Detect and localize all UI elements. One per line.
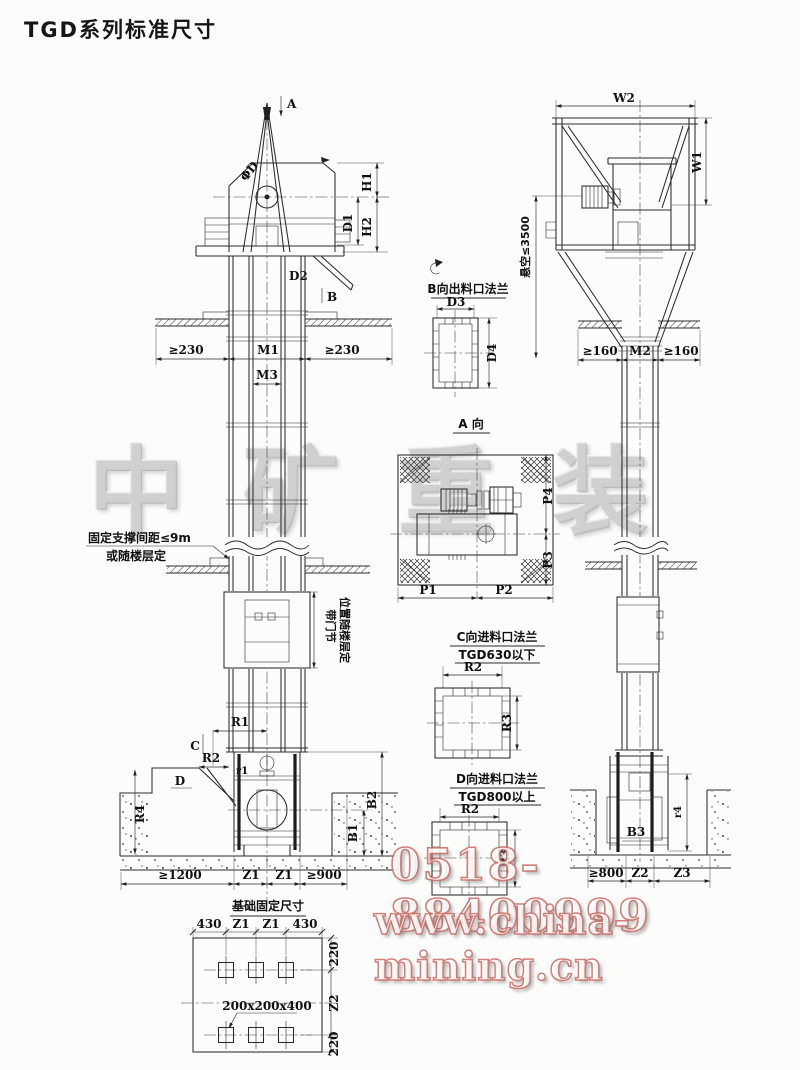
discharge-spout: B D2 bbox=[285, 256, 353, 304]
support-note-line1: 固定支撑间距≤9m bbox=[88, 530, 191, 545]
foundation-title: 基础固定尺寸 bbox=[231, 898, 304, 913]
door-note-line2: 位置随楼层定 bbox=[338, 597, 352, 663]
flange-d-title: D向进料口法兰 bbox=[456, 771, 538, 786]
clear-left-label: ≥160 bbox=[582, 344, 617, 358]
door-section: 带门节 位置随楼层定 bbox=[223, 591, 352, 669]
m2-label: M2 bbox=[629, 344, 651, 358]
dim-430-label: 430 bbox=[196, 917, 221, 931]
pit-right: B2 B1 bbox=[306, 752, 398, 856]
base-right-label: ≥900 bbox=[306, 868, 341, 882]
door-section-side bbox=[615, 596, 663, 673]
p3-label: P3 bbox=[541, 551, 555, 568]
section-b-label: B bbox=[327, 290, 337, 304]
d3-label: D3 bbox=[447, 295, 466, 309]
head-frame bbox=[546, 118, 698, 250]
hole-note-label: 200x200x400 bbox=[222, 999, 311, 1013]
floor-1-side: ≥160 M2 ≥160 bbox=[578, 321, 700, 366]
head-assembly: ΦD bbox=[196, 157, 350, 256]
flange-b-detail: B向出料口法兰 D3 D4 bbox=[424, 259, 509, 397]
dim-220-label: 220 bbox=[327, 1031, 341, 1056]
h2-label: H2 bbox=[360, 217, 374, 237]
hole-size-note: 200x200x400 bbox=[222, 999, 311, 1028]
r4-label: R4 bbox=[133, 805, 147, 823]
flange-c-title: C向进料口法兰 bbox=[457, 629, 538, 644]
r3-label: R3 bbox=[500, 714, 514, 732]
foundation-plan: 基础固定尺寸 430 Z1 Z1 430 22 bbox=[181, 898, 341, 1057]
floor-2-side bbox=[585, 562, 697, 569]
rotation-arrow-icon bbox=[431, 259, 443, 274]
p4-label: P4 bbox=[541, 487, 555, 504]
suspend-label: 悬空≤3500 bbox=[518, 216, 532, 279]
b3-label: B3 bbox=[627, 825, 646, 839]
w2-label: W2 bbox=[612, 91, 635, 105]
r2-label: R2 bbox=[461, 802, 479, 816]
plan-side-dimensions: 220 Z2 220 bbox=[300, 935, 341, 1057]
p2-label: P2 bbox=[495, 583, 512, 597]
head-casing-side bbox=[582, 158, 676, 250]
base-left-label: ≥1200 bbox=[158, 868, 201, 882]
p1-label: P1 bbox=[419, 583, 436, 597]
b1-label: B1 bbox=[346, 824, 360, 843]
z1-label: Z1 bbox=[232, 917, 249, 931]
h1-label: H1 bbox=[360, 172, 374, 192]
m1-label: M1 bbox=[257, 343, 279, 357]
door-note-line1: 带门节 bbox=[324, 610, 338, 643]
r2-label: R2 bbox=[464, 660, 482, 674]
head-casing-plan bbox=[417, 509, 517, 560]
z1-label: Z1 bbox=[262, 917, 279, 931]
b2-label: B2 bbox=[365, 791, 379, 810]
support-note: 固定支撑间距≤9m 或随楼层定 bbox=[86, 530, 229, 563]
m3-label: M3 bbox=[256, 368, 278, 382]
flange-b-title: B向出料口法兰 bbox=[427, 281, 508, 296]
d1-label: D1 bbox=[341, 214, 355, 233]
section-d-label: D bbox=[175, 774, 185, 788]
boot-side: B3 bbox=[607, 750, 668, 852]
clear-right-label: ≥160 bbox=[663, 344, 698, 358]
r1-label: R1 bbox=[231, 715, 249, 729]
z1-label: Z1 bbox=[275, 868, 292, 882]
r4-small-label: r4 bbox=[673, 806, 684, 818]
floor-1: ≥230 M1 ≥230 M3 bbox=[155, 312, 392, 388]
section-c-label: C bbox=[190, 739, 200, 753]
dim-430-label: 430 bbox=[292, 917, 317, 931]
page-title: TGD系列标准尺寸 bbox=[24, 14, 217, 44]
view-a-detail: A 向 P4 P3 bbox=[390, 416, 560, 603]
plan-top-dimensions: 430 Z1 Z1 430 bbox=[190, 917, 325, 955]
floor-2 bbox=[166, 558, 370, 573]
section-a-label: A bbox=[286, 97, 297, 111]
dim-220-label: 220 bbox=[327, 941, 341, 966]
head-dimensions: H1 H2 D1 bbox=[337, 163, 388, 252]
r2-label: R2 bbox=[202, 751, 220, 765]
z1-label: Z1 bbox=[242, 868, 259, 882]
clear-left-label: ≥230 bbox=[168, 343, 203, 357]
view-a-title: A 向 bbox=[458, 416, 483, 431]
clear-right-label: ≥230 bbox=[324, 343, 359, 357]
front-view: A ΦD bbox=[86, 96, 398, 905]
w1-label: W1 bbox=[690, 151, 704, 174]
z2-label: Z2 bbox=[327, 994, 341, 1011]
support-note-line2: 或随楼层定 bbox=[106, 548, 166, 563]
flange-c-detail: C向进料口法兰 TGD630以下 R2 R3 bbox=[427, 629, 545, 765]
d4-label: D4 bbox=[485, 344, 499, 363]
website-watermark: www.china-mining.cn bbox=[374, 898, 800, 990]
